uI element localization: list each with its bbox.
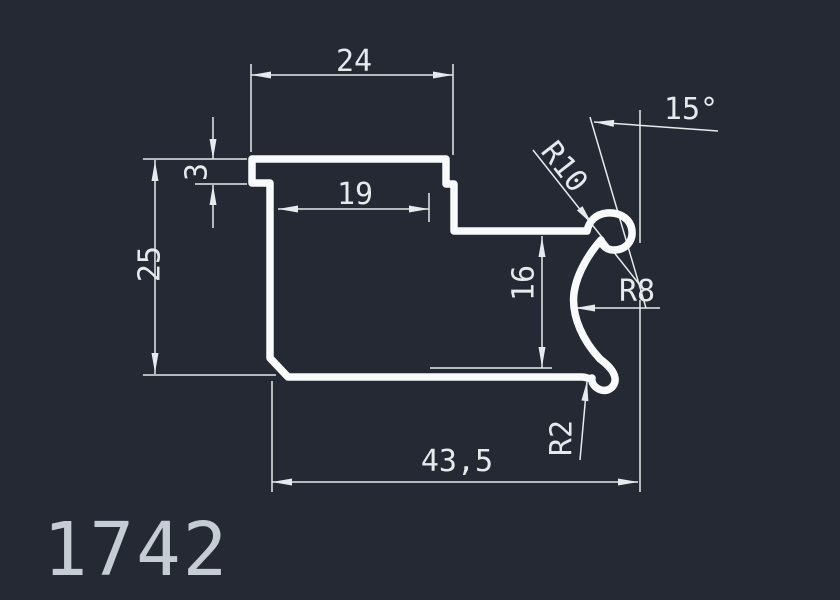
dimension-flange-width: 24 xyxy=(251,44,453,155)
dimension-right-height: 16 xyxy=(430,236,552,368)
arrowhead xyxy=(618,479,638,486)
dimension-label: R10 xyxy=(534,135,595,199)
dimension-radius-small: R2 xyxy=(545,381,591,460)
dimension-label: R8 xyxy=(619,274,655,309)
dimension-label: 19 xyxy=(337,177,373,212)
dimension-left-height: 25 xyxy=(133,160,277,375)
arrowhead xyxy=(409,206,429,213)
profile-outline xyxy=(252,159,632,390)
arrowhead xyxy=(152,161,159,181)
arrowhead xyxy=(272,479,292,486)
dimension-label: R2 xyxy=(545,420,580,456)
dimension-label: 16 xyxy=(507,265,542,301)
arrowhead xyxy=(539,347,546,367)
part-number: 1742 xyxy=(43,507,229,593)
cad-drawing-viewport[interactable]: 24 3 25 19 16 4 xyxy=(0,0,840,600)
dimension-radius-mid: R8 xyxy=(575,274,660,312)
arrowhead xyxy=(594,119,614,127)
arrowhead xyxy=(152,353,159,373)
dimension-label: 3 xyxy=(180,163,215,181)
arrowhead xyxy=(251,72,271,79)
dimension-label: 25 xyxy=(133,246,168,282)
arrowhead xyxy=(539,237,546,257)
dimension-inner-width: 19 xyxy=(278,177,429,222)
drawing-canvas[interactable]: 24 3 25 19 16 4 xyxy=(0,0,840,600)
arrowhead xyxy=(278,206,298,213)
dimension-label: 15° xyxy=(664,92,718,127)
dimension-step-thickness: 3 xyxy=(143,117,247,228)
dimension-radius-large: R10 xyxy=(533,135,643,289)
arrowhead xyxy=(210,139,217,159)
arrowhead xyxy=(433,72,453,79)
dimension-label: 24 xyxy=(336,44,372,79)
arrowhead xyxy=(210,185,217,205)
dimension-label: 43,5 xyxy=(421,444,493,479)
